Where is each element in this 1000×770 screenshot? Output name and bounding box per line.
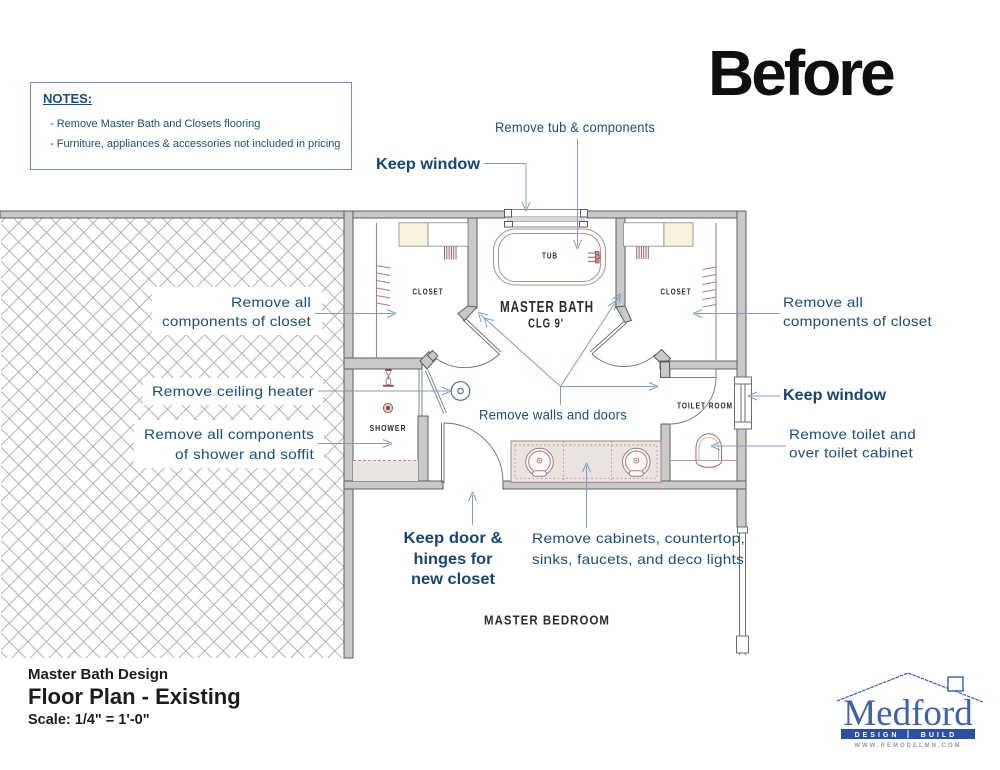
svg-text:of shower and soffit: of shower and soffit <box>175 446 314 462</box>
svg-text:components of closet: components of closet <box>783 313 932 329</box>
svg-text:Remove toilet and: Remove toilet and <box>789 426 916 442</box>
svg-text:Remove tub & components: Remove tub & components <box>495 119 655 135</box>
svg-text:BUILD: BUILD <box>921 732 957 739</box>
svg-text:Remove all components: Remove all components <box>144 426 314 442</box>
svg-text:Keep window: Keep window <box>376 156 481 173</box>
svg-text:sinks, faucets, and deco light: sinks, faucets, and deco lights <box>532 551 744 567</box>
svg-text:Medford: Medford <box>843 693 973 734</box>
svg-text:MASTER BEDROOM: MASTER BEDROOM <box>484 613 610 628</box>
svg-text:components of closet: components of closet <box>162 313 311 329</box>
svg-text:Remove cabinets, countertop,: Remove cabinets, countertop, <box>532 530 745 546</box>
svg-text:CLOSET: CLOSET <box>413 287 444 297</box>
svg-text:CLG 9': CLG 9' <box>528 317 564 331</box>
svg-text:TOILET ROOM: TOILET ROOM <box>677 401 733 411</box>
svg-text:new closet: new closet <box>411 571 495 588</box>
svg-text:Keep door &: Keep door & <box>404 530 503 547</box>
svg-text:Keep window: Keep window <box>783 387 887 404</box>
svg-text:SHOWER: SHOWER <box>370 423 407 433</box>
svg-text:Remove walls and doors: Remove walls and doors <box>479 407 627 423</box>
svg-text:CLOSET: CLOSET <box>661 287 692 297</box>
svg-text:Remove ceiling heater: Remove ceiling heater <box>152 383 314 399</box>
svg-text:over toilet cabinet: over toilet cabinet <box>789 445 913 461</box>
svg-text:Remove all: Remove all <box>231 294 311 310</box>
svg-text:TUB: TUB <box>542 251 558 261</box>
svg-text:Remove all: Remove all <box>783 294 863 310</box>
svg-text:DESIGN: DESIGN <box>855 732 900 739</box>
svg-text:WWW.REMODELMN.COM: WWW.REMODELMN.COM <box>854 743 961 749</box>
svg-text:hinges for: hinges for <box>414 551 493 568</box>
svg-text:MASTER BATH: MASTER BATH <box>500 299 594 316</box>
